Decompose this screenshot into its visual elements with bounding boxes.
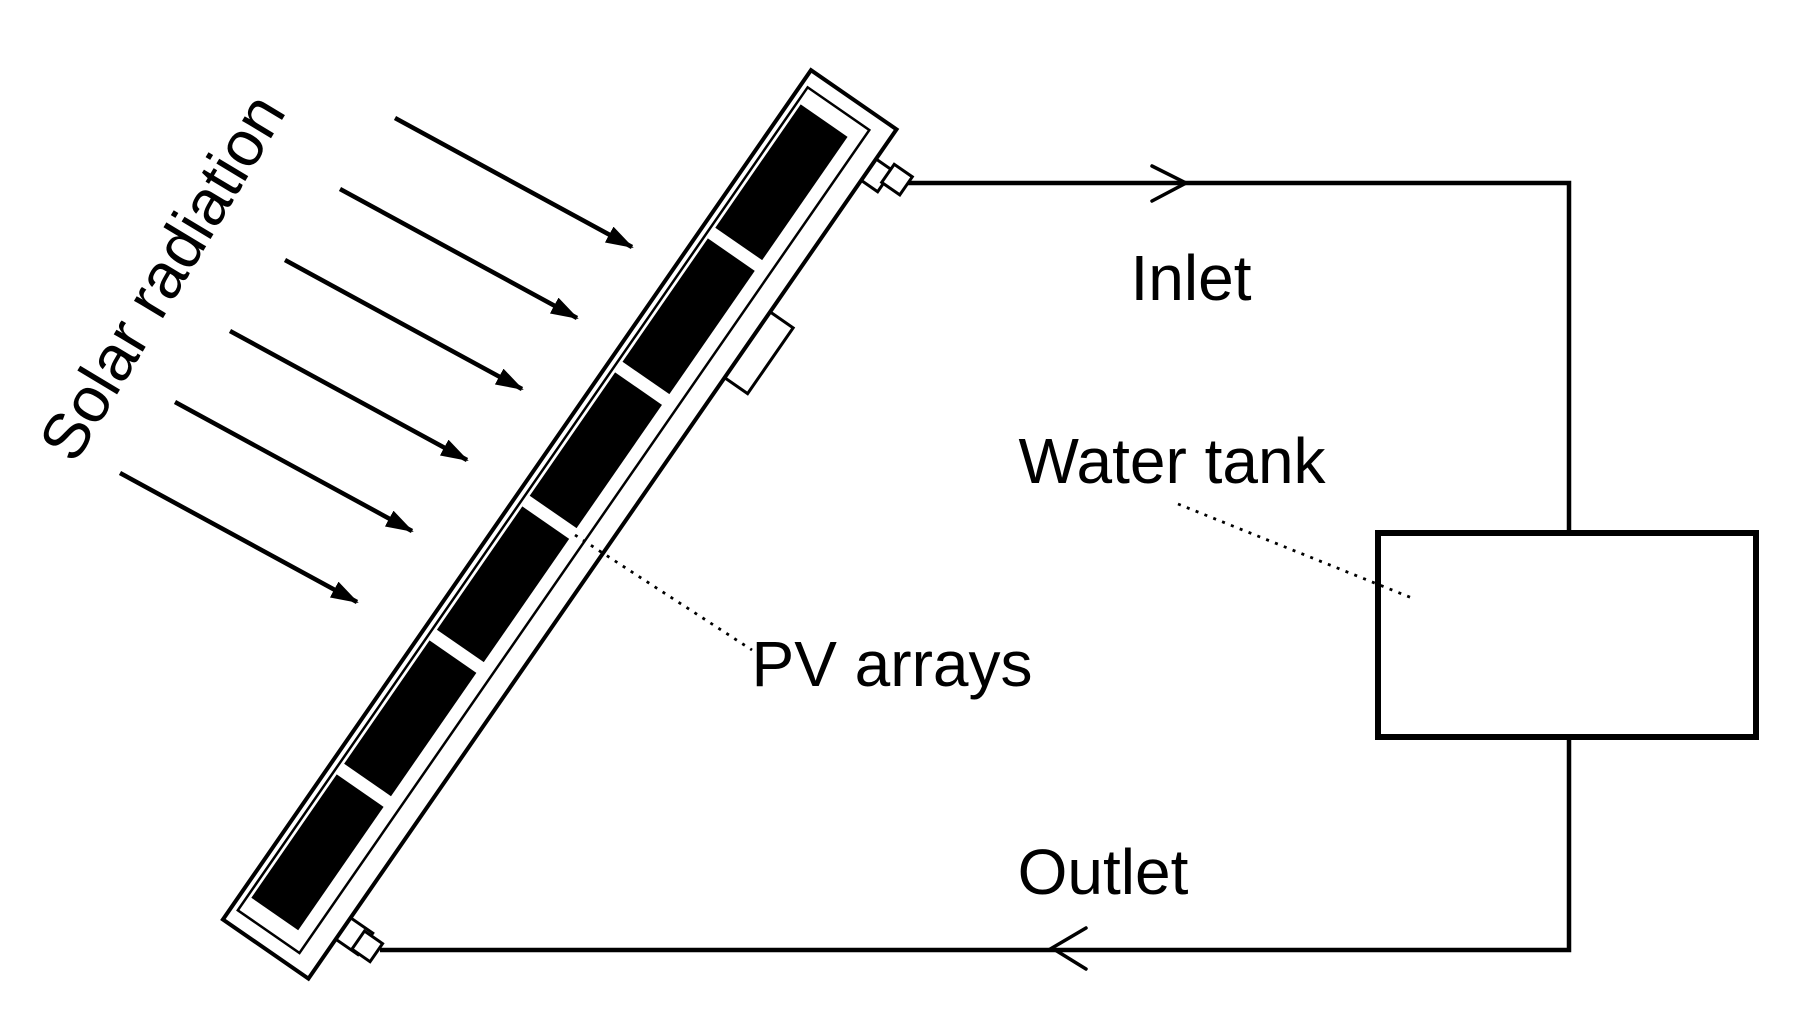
solar-arrow-icon [340,189,577,318]
solar-arrow-icon [395,118,632,247]
water-tank [1378,533,1756,737]
water-tank-label: Water tank [1018,425,1326,497]
pvt-system-diagram: Solar radiation Inlet Water tank PV arra… [0,0,1807,1027]
inlet-label: Inlet [1131,242,1252,314]
outlet-pipe [380,737,1569,950]
solar-arrow-icon [285,260,522,389]
solar-arrow-icon [120,473,357,602]
solar-arrow-icon [175,402,412,531]
outlet-label: Outlet [1018,836,1189,908]
solar-radiation-label: Solar radiation [25,82,299,473]
solar-arrow-icon [230,331,467,460]
pv-arrays-label: PV arrays [752,628,1033,700]
diagram-canvas: Solar radiation Inlet Water tank PV arra… [0,0,1807,1027]
